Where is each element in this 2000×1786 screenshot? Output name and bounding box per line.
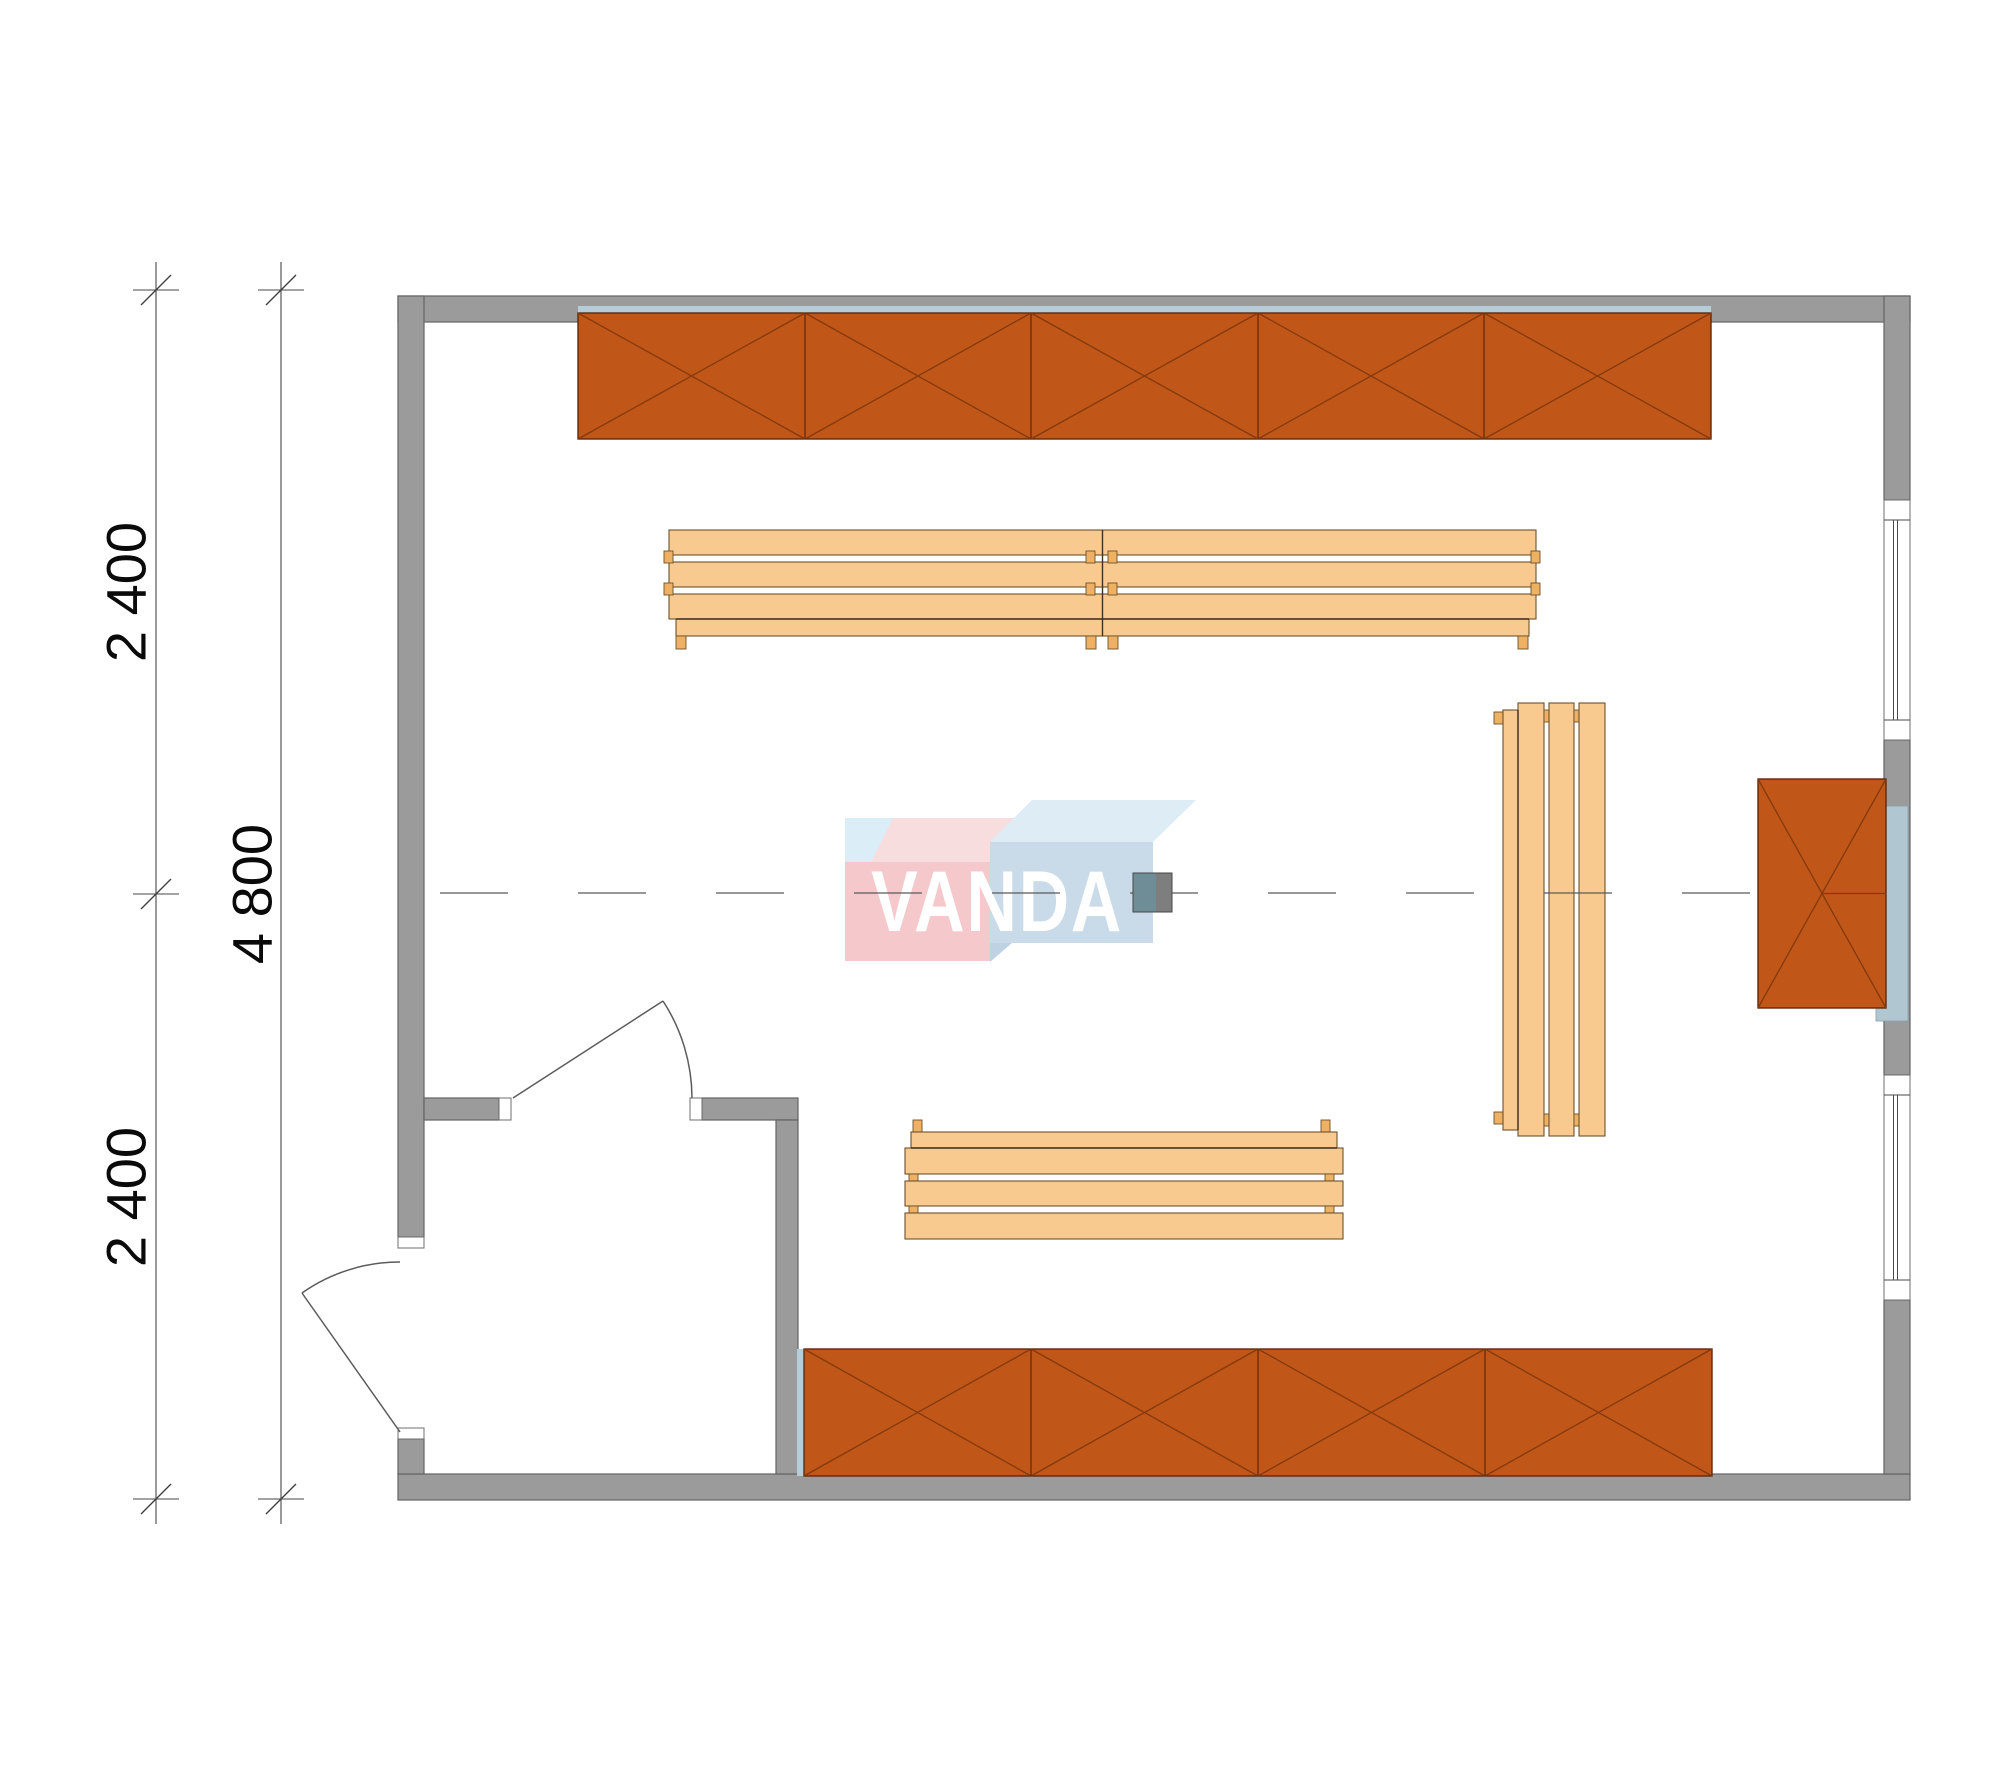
bench-plank (1518, 703, 1544, 1136)
bench-plank (905, 1213, 1343, 1239)
top-bench (664, 530, 1540, 649)
jamb-entry-door-bottom (398, 1428, 424, 1439)
lower-shelf-unit (797, 1349, 1712, 1476)
bench-foot (676, 636, 686, 649)
watermark-text: VANDA (871, 854, 1123, 950)
window-upper (1884, 500, 1910, 740)
sauna-door-leaf (513, 1001, 663, 1098)
bench-plank (905, 1181, 1343, 1206)
bench-plank-upper (911, 1132, 1337, 1148)
wall-right-upper (1884, 296, 1910, 500)
bench-peg (664, 551, 673, 563)
bench-peg (1086, 583, 1095, 595)
wall-vestibule-right (702, 1098, 798, 1120)
jamb-entry-door-top (398, 1237, 424, 1248)
bench-plank (1579, 703, 1605, 1136)
wall-vestibule-vertical (776, 1120, 798, 1474)
upper-shelf-unit (578, 306, 1711, 439)
bench-peg (1321, 1120, 1330, 1133)
wall-left-lower (398, 1439, 424, 1474)
bench-peg (1108, 583, 1117, 595)
floor-plan-canvas: VANDA 2 400 4 800 2 400 (0, 0, 2000, 1786)
window-lower (1884, 1075, 1910, 1300)
bench-plank (905, 1148, 1343, 1174)
wall-bottom (398, 1474, 1910, 1500)
sauna-door-swing-arc (663, 1001, 692, 1098)
bench-peg (664, 583, 673, 595)
upper-shelf-blue-strip (578, 306, 1711, 313)
wall-right-lower (1884, 1300, 1910, 1474)
heater (1758, 779, 1908, 1021)
bench-peg (913, 1120, 922, 1133)
dimension-label-top: 2 400 (95, 522, 158, 662)
vertical-bench (1494, 703, 1605, 1136)
bench-plank (1549, 703, 1574, 1136)
entry-door (302, 1262, 400, 1432)
logo-blue-box-top (990, 800, 1196, 842)
jamb-sauna-door-left (499, 1098, 511, 1120)
bench-peg (1086, 551, 1095, 563)
middle-bench (905, 1120, 1343, 1239)
sauna-door (513, 1001, 692, 1098)
bench-peg (1108, 551, 1117, 563)
bench-foot (1518, 636, 1528, 649)
bench-peg (1531, 551, 1540, 563)
wall-vestibule-left (424, 1098, 499, 1120)
center-marker (1133, 873, 1172, 912)
marker-teal-half (1133, 873, 1156, 912)
jamb-sauna-door-right (690, 1098, 702, 1120)
dimension-label-bottom: 2 400 (95, 1127, 158, 1267)
entry-door-leaf (302, 1293, 400, 1432)
dimension-annotations: 2 400 4 800 2 400 (95, 262, 304, 1524)
entry-door-swing-arc (302, 1262, 400, 1293)
bench-plank-side (1503, 710, 1518, 1130)
bench-peg (1531, 583, 1540, 595)
bench-foot (1108, 636, 1118, 649)
floor-plan-page: VANDA 2 400 4 800 2 400 (0, 0, 2000, 1786)
wall-left-upper (398, 296, 424, 1237)
dimension-label-total: 4 800 (221, 824, 284, 964)
lower-shelf-blue-strip (797, 1349, 804, 1476)
bench-foot (1086, 636, 1096, 649)
marker-gray-half (1156, 873, 1172, 912)
